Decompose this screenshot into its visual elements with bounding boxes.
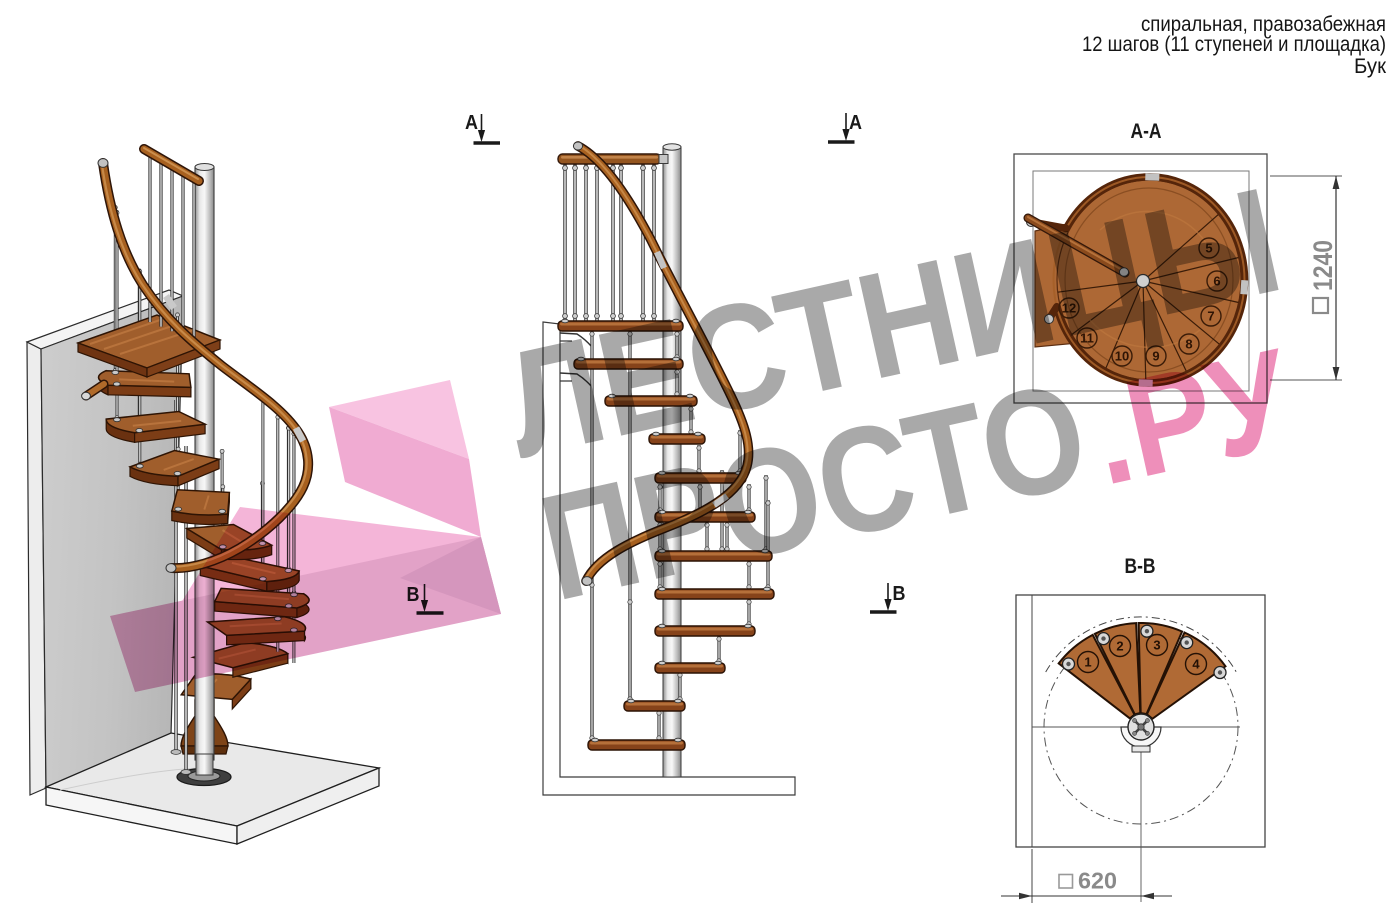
svg-text:620: 620 <box>1078 868 1117 894</box>
svg-text:А-А: А-А <box>1131 120 1162 143</box>
svg-text:2: 2 <box>1116 639 1123 654</box>
svg-text:В-В: В-В <box>1125 555 1156 578</box>
svg-text:1240: 1240 <box>1308 240 1338 291</box>
svg-text:В: В <box>893 583 906 605</box>
svg-text:А: А <box>465 112 478 134</box>
svg-text:4: 4 <box>1192 657 1200 672</box>
svg-text:12 шагов (11 ступеней и площад: 12 шагов (11 ступеней и площадка) <box>1082 33 1386 56</box>
svg-text:3: 3 <box>1153 638 1160 653</box>
svg-text:Бук: Бук <box>1354 55 1387 78</box>
svg-text:А: А <box>849 112 862 134</box>
svg-text:1: 1 <box>1084 655 1091 670</box>
